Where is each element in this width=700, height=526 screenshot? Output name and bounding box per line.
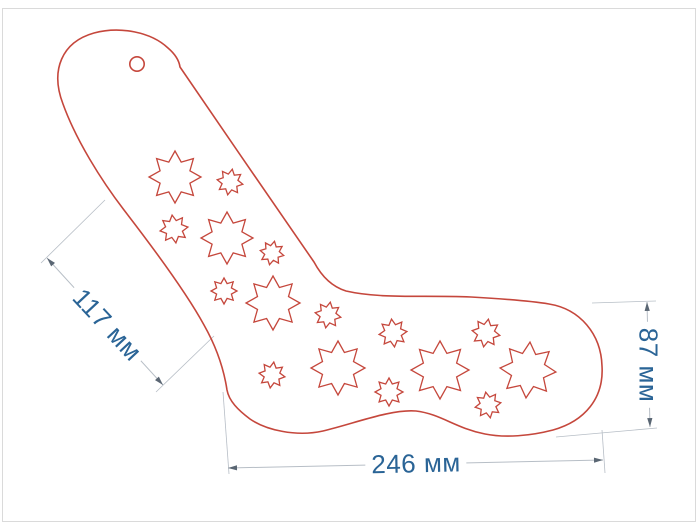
star-cutout xyxy=(475,392,501,418)
sock-outline xyxy=(58,30,602,436)
dimension-arrow xyxy=(647,418,652,427)
star-cutout xyxy=(259,362,285,388)
extension-line xyxy=(156,336,214,392)
star-cutout xyxy=(211,278,237,304)
star-cutout xyxy=(160,215,188,243)
star-cutout xyxy=(472,319,500,347)
hang-hole xyxy=(130,57,144,71)
extension-line xyxy=(592,301,656,303)
drawing-canvas: 117 мм 87 мм 246 мм xyxy=(0,0,700,526)
extension-line xyxy=(223,392,229,474)
dimension-line xyxy=(647,302,650,427)
star-cutout xyxy=(315,302,341,328)
dimension-arrow xyxy=(645,302,650,311)
star-cutout xyxy=(375,378,403,406)
star-cutout xyxy=(201,212,253,264)
dimension-arrow xyxy=(228,465,237,470)
star-cutout xyxy=(500,342,556,398)
sock-blocker-diagram xyxy=(0,0,700,526)
star-cutout xyxy=(149,151,201,203)
star-cutout xyxy=(379,319,407,347)
dimension-line xyxy=(47,258,163,385)
star-cutout xyxy=(311,341,365,395)
extension-line xyxy=(556,428,657,437)
dimension-line xyxy=(228,460,603,468)
star-cutout xyxy=(246,276,300,330)
dimension-arrow xyxy=(594,458,603,463)
star-cutout xyxy=(411,341,469,399)
star-cutout xyxy=(217,169,243,195)
extension-line xyxy=(602,430,605,473)
star-cutout xyxy=(260,241,283,264)
extension-line xyxy=(41,200,105,263)
